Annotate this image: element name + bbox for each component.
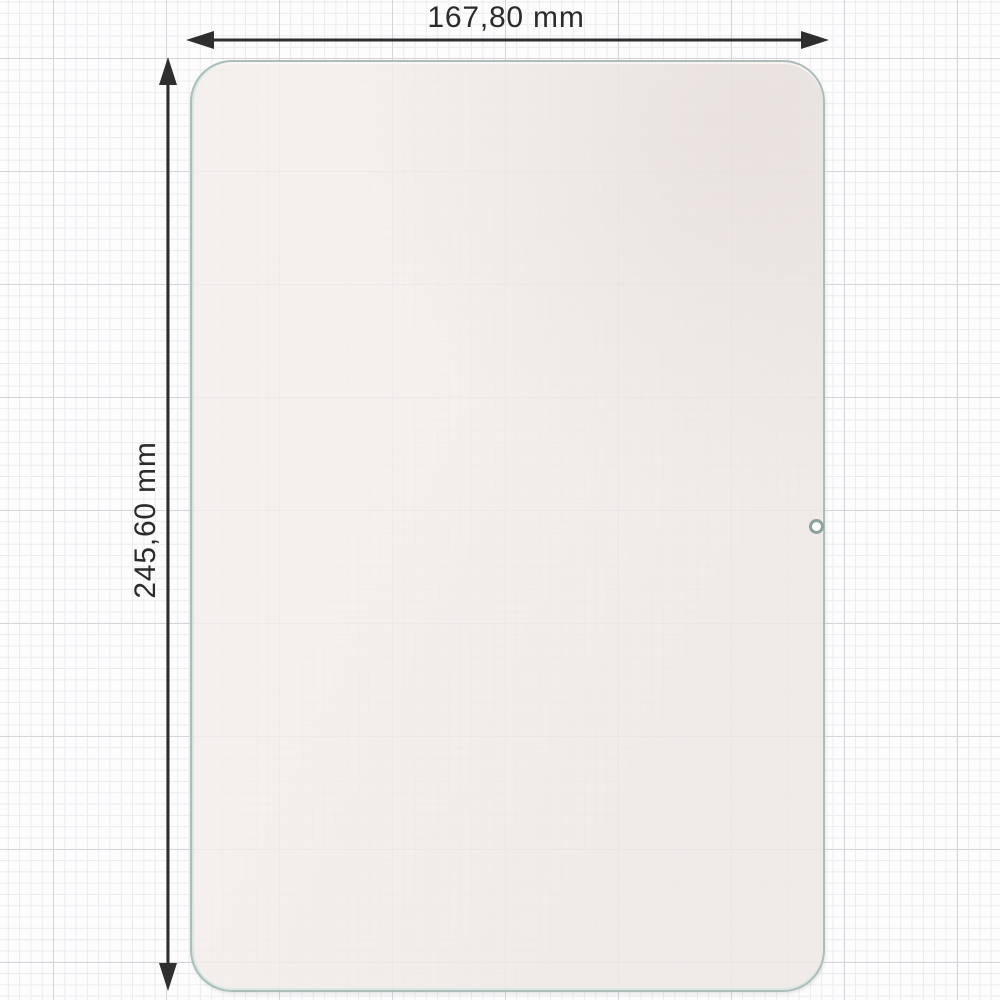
dimension-diagram: 167,80 mm 245,60 mm <box>0 0 1000 1000</box>
camera-hole-icon <box>809 519 824 534</box>
height-dimension-label: 245,60 mm <box>129 441 163 598</box>
width-dimension-label: 167,80 mm <box>427 1 584 35</box>
screen-protector-outline <box>190 60 825 992</box>
